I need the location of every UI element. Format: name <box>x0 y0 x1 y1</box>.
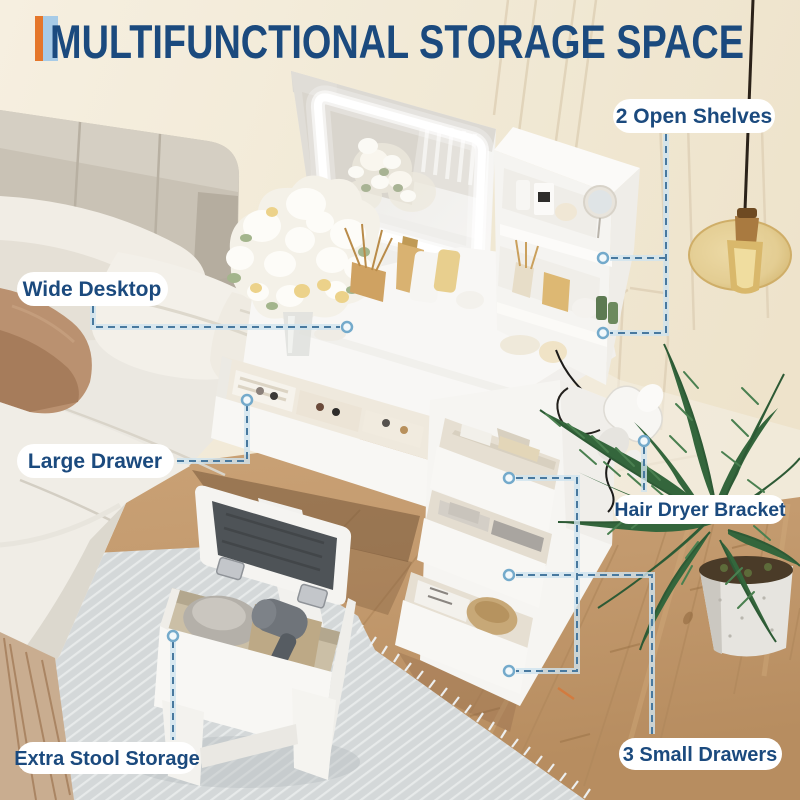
svg-text:2 Open Shelves: 2 Open Shelves <box>616 105 772 128</box>
svg-text:Hair Dryer Bracket: Hair Dryer Bracket <box>614 499 786 521</box>
svg-text:Wide Desktop: Wide Desktop <box>23 278 162 301</box>
svg-text:MULTIFUNCTIONAL STORAGE SPACE: MULTIFUNCTIONAL STORAGE SPACE <box>50 15 744 68</box>
svg-text:3 Small Drawers: 3 Small Drawers <box>623 744 778 766</box>
svg-text:Extra Stool Storage: Extra Stool Storage <box>14 748 200 770</box>
svg-text:Large Drawer: Large Drawer <box>28 450 162 473</box>
